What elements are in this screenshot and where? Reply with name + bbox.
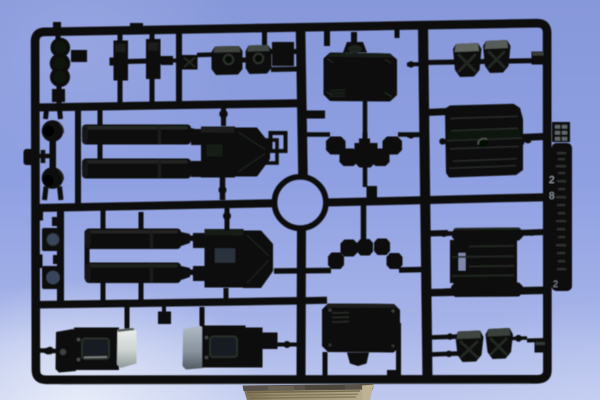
svg-text:8: 8 xyxy=(549,191,555,202)
svg-text:2: 2 xyxy=(549,175,555,186)
svg-text:2: 2 xyxy=(553,279,558,289)
